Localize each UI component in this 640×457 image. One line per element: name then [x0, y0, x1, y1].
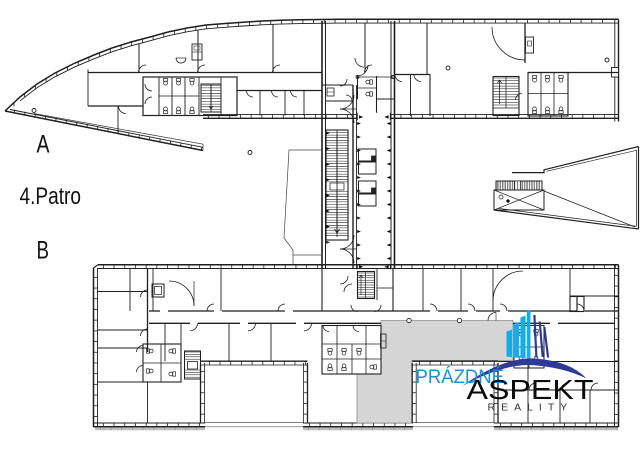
svg-text:4.Patro: 4.Patro [20, 183, 82, 210]
svg-text:REALITY: REALITY [488, 402, 574, 414]
svg-text:B: B [37, 237, 50, 265]
svg-text:ASPEKT: ASPEKT [467, 374, 594, 405]
svg-text:A: A [37, 131, 50, 159]
